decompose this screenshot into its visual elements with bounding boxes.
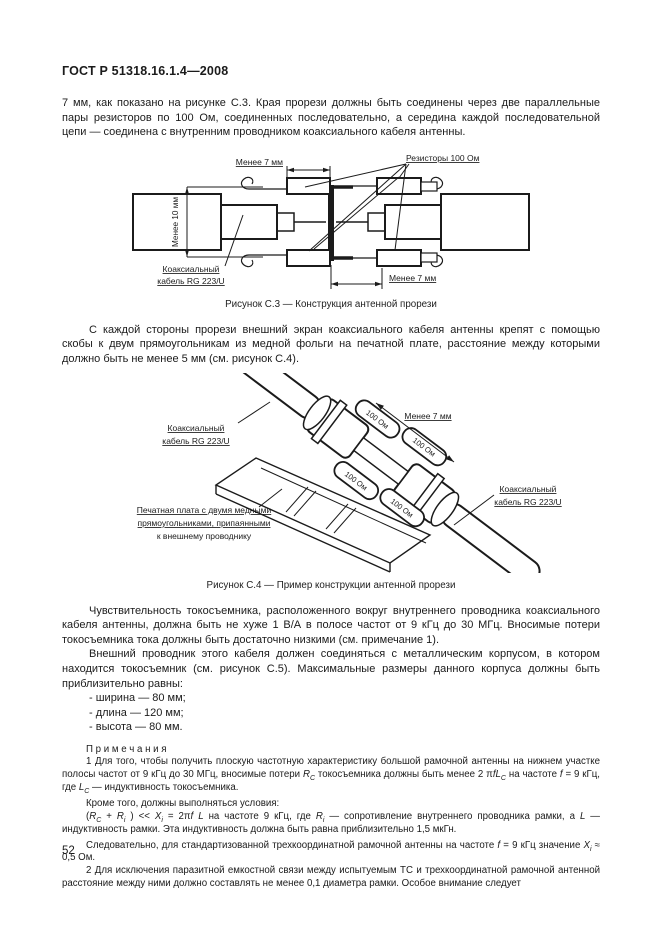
fig-c4-label-cable-left-2: кабель RG 223/U (162, 436, 229, 446)
cable-label-leader (225, 215, 243, 266)
document-page: { "header": { "title": "ГОСТ Р 51318.16.… (0, 0, 661, 936)
list-item-height: - высота — 80 мм. (62, 720, 600, 735)
fig-c3-label-less10: Менее 10 мм (171, 196, 180, 246)
paragraph-sensitivity: Чувствительность токосъемника, расположе… (62, 604, 600, 648)
paragraph-c4-intro: С каждой стороны прорези внешний экран к… (62, 323, 600, 367)
note-1: 1 Для того, чтобы получить плоскую часто… (62, 756, 600, 794)
figure-c4-caption: Рисунок С.4 — Пример конструкции антенно… (62, 580, 600, 591)
fig-c4-label-cable-right-2: кабель RG 223/U (494, 497, 561, 507)
fig-c4-label-cable-right-1: Коаксиальный (500, 484, 557, 494)
list-item-width: - ширина — 80 мм; (62, 691, 600, 706)
fig-c3-label-less7-bottom: Менее 7 мм (389, 273, 436, 283)
note-1-conclusion: Следовательно, для стандартизованной тре… (62, 840, 600, 866)
dimension-bottom (331, 265, 382, 289)
page-number: 52 (62, 845, 75, 857)
fig-c3-label-less7-top: Менее 7 мм (235, 157, 282, 167)
paragraph-outer-conductor: Внешний проводник этого кабеля должен со… (62, 647, 600, 691)
note-1-conditions-intro: Кроме того, должны выполняться условия: (62, 798, 600, 811)
intro-paragraph: 7 мм, как показано на рисунке С.3. Края … (62, 96, 600, 140)
figure-c3-caption: Рисунок С.3 — Конструкция антенной проре… (62, 299, 600, 310)
coax-cable-right-outline (441, 194, 529, 250)
fig-c3-label-cable-2: кабель RG 223/U (157, 276, 224, 286)
note-2: 2 Для исключения паразитной емкостной св… (62, 865, 600, 891)
dimension-left (184, 187, 262, 257)
document-title: ГОСТ Р 51318.16.1.4—2008 (62, 64, 600, 78)
fig-c4-label-cable-left-1: Коаксиальный (168, 423, 225, 433)
fig-c4-label-pcb-2: прямоугольниками, припаянными (138, 518, 271, 528)
dimension-top (287, 166, 330, 178)
fig-c3-label-resistors: Резисторы 100 Ом (406, 153, 480, 163)
fig-c4-label-less7: Менее 7 мм (404, 411, 451, 421)
notes-heading: П р и м е ч а н и я (62, 743, 600, 756)
note-1-formula: (RC + Ri ) << Xi = 2πf L на частоте 9 кГ… (62, 811, 600, 837)
list-item-length: - длина — 120 мм; (62, 706, 600, 721)
figure-c3-drawing: Менее 7 мм Резисторы 100 Ом Менее 10 мм … (119, 147, 544, 292)
fig-c3-label-cable-1: Коаксиальный (162, 264, 219, 274)
fig-c4-label-pcb-1: Печатная плата с двумя медными (137, 505, 272, 515)
cable-assembly: 100 Ом 100 Ом 100 Ом 100 Ом (202, 373, 565, 573)
page-body: ГОСТ Р 51318.16.1.4—2008 7 мм, как показ… (0, 0, 661, 936)
figure-c4-drawing: 100 Ом 100 Ом 100 Ом 100 Ом Коаксиальный (96, 373, 566, 573)
fig-c4-label-pcb-3: к внешнему проводнику (157, 531, 252, 541)
notes-section: П р и м е ч а н и я 1 Для того, чтобы по… (62, 743, 600, 891)
